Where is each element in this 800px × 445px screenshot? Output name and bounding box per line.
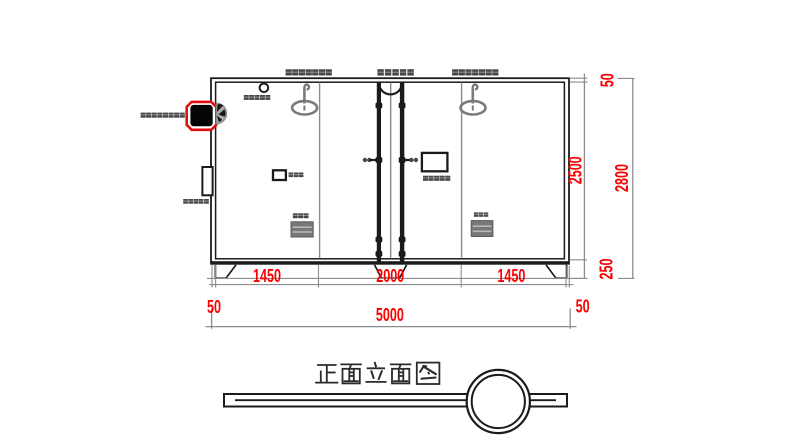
svg-text:2800: 2800	[613, 164, 633, 192]
svg-text:2000: 2000	[376, 267, 404, 287]
svg-text:5000: 5000	[376, 306, 404, 326]
svg-text:50: 50	[576, 297, 590, 317]
svg-text:1450: 1450	[497, 267, 525, 287]
svg-text:1450: 1450	[253, 267, 281, 287]
svg-text:250: 250	[597, 258, 617, 279]
svg-text:50: 50	[598, 73, 618, 87]
svg-text:2500: 2500	[566, 156, 586, 184]
svg-text:50: 50	[207, 298, 221, 318]
